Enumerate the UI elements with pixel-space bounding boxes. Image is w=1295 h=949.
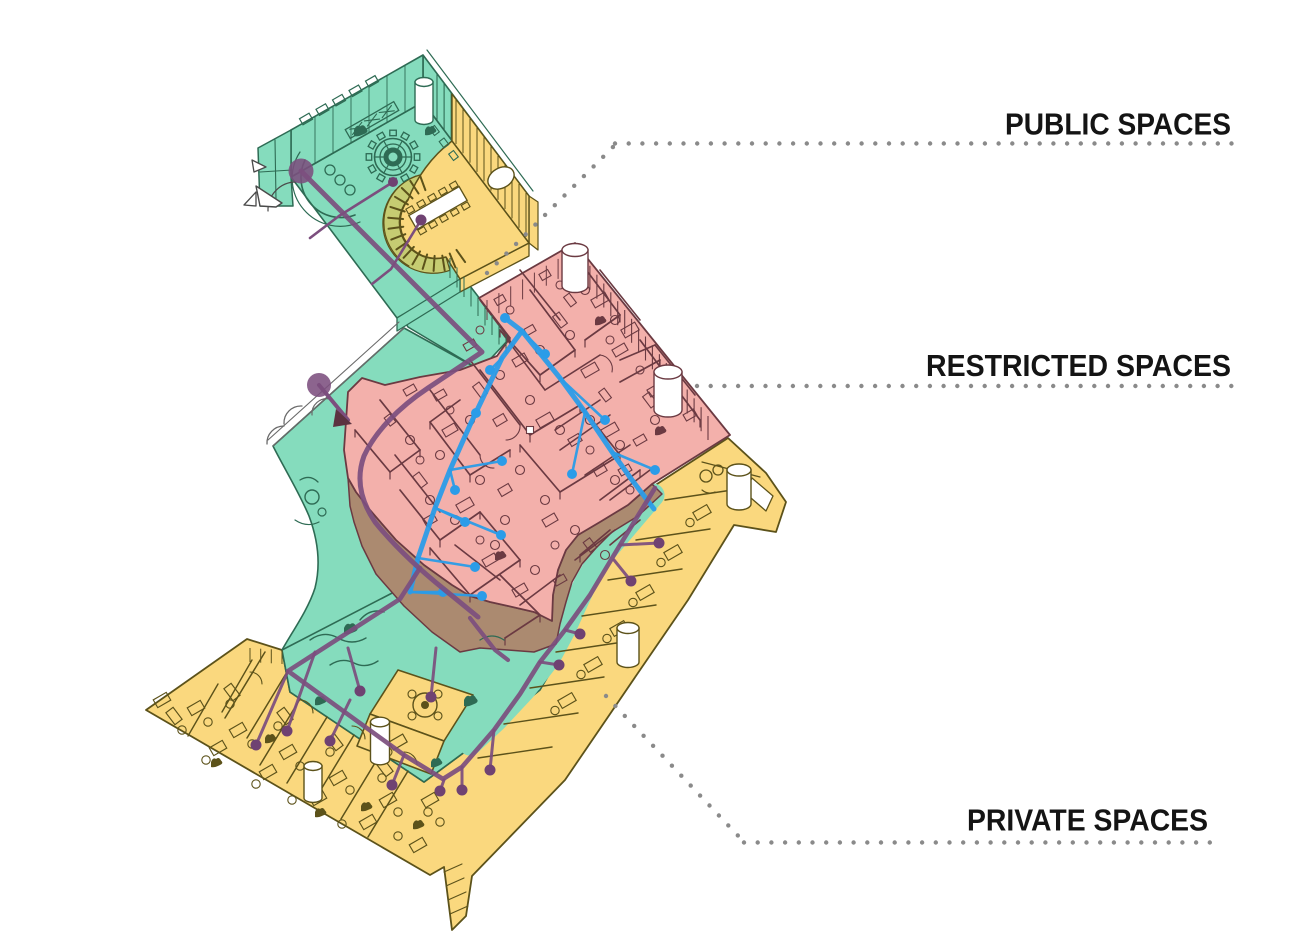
svg-text:PUBLIC SPACES: PUBLIC SPACES	[1005, 107, 1231, 142]
svg-text:RESTRICTED SPACES: RESTRICTED SPACES	[926, 348, 1231, 383]
svg-text:PRIVATE SPACES: PRIVATE SPACES	[967, 803, 1208, 838]
